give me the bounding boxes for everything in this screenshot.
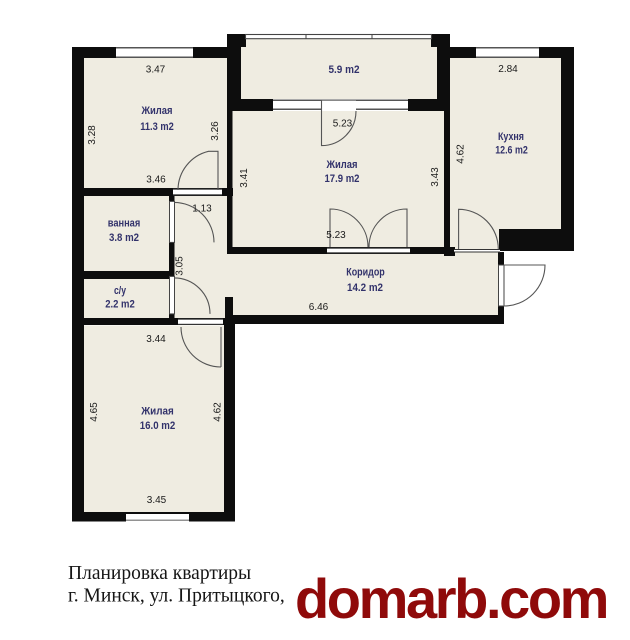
svg-text:3.8 m2: 3.8 m2	[109, 232, 139, 244]
svg-text:3.41: 3.41	[239, 168, 250, 188]
svg-text:3.45: 3.45	[147, 495, 167, 506]
svg-text:3.47: 3.47	[146, 65, 166, 76]
svg-text:2.84: 2.84	[498, 64, 518, 75]
svg-text:17.9 m2: 17.9 m2	[325, 173, 360, 185]
svg-text:6.46: 6.46	[309, 302, 329, 313]
svg-text:5.9 m2: 5.9 m2	[329, 64, 360, 76]
svg-text:Коридор: Коридор	[346, 267, 385, 279]
svg-text:3.46: 3.46	[146, 175, 166, 186]
svg-text:16.0 m2: 16.0 m2	[140, 420, 176, 432]
svg-text:11.3 m2: 11.3 m2	[140, 121, 174, 133]
svg-text:Жилая: Жилая	[140, 406, 173, 418]
svg-text:5.23: 5.23	[326, 230, 346, 241]
svg-text:3.05: 3.05	[175, 256, 186, 276]
svg-text:1.13: 1.13	[192, 204, 212, 215]
svg-text:4.65: 4.65	[89, 402, 100, 422]
svg-text:4.62: 4.62	[212, 402, 223, 422]
svg-text:ванная: ванная	[108, 218, 141, 230]
svg-text:domarb.com: domarb.com	[295, 567, 607, 630]
svg-text:4.62: 4.62	[456, 144, 467, 164]
svg-text:Планировка квартиры: Планировка квартиры	[68, 563, 251, 584]
svg-text:3.26: 3.26	[210, 121, 221, 141]
svg-text:2.2 m2: 2.2 m2	[105, 299, 135, 311]
svg-text:Жилая: Жилая	[326, 159, 358, 171]
svg-text:с/у: с/у	[114, 285, 127, 297]
svg-text:3.28: 3.28	[87, 125, 98, 145]
svg-text:3.43: 3.43	[430, 167, 441, 187]
svg-text:12.6 m2: 12.6 m2	[495, 145, 528, 157]
svg-text:14.2 m2: 14.2 m2	[347, 282, 383, 294]
svg-text:Кухня: Кухня	[498, 131, 524, 143]
svg-text:Жилая: Жилая	[141, 105, 173, 117]
svg-text:3.44: 3.44	[146, 334, 166, 345]
svg-text:5.23: 5.23	[333, 119, 353, 130]
svg-text:г. Минск, ул. Притыцкого,: г. Минск, ул. Притыцкого,	[68, 586, 285, 607]
